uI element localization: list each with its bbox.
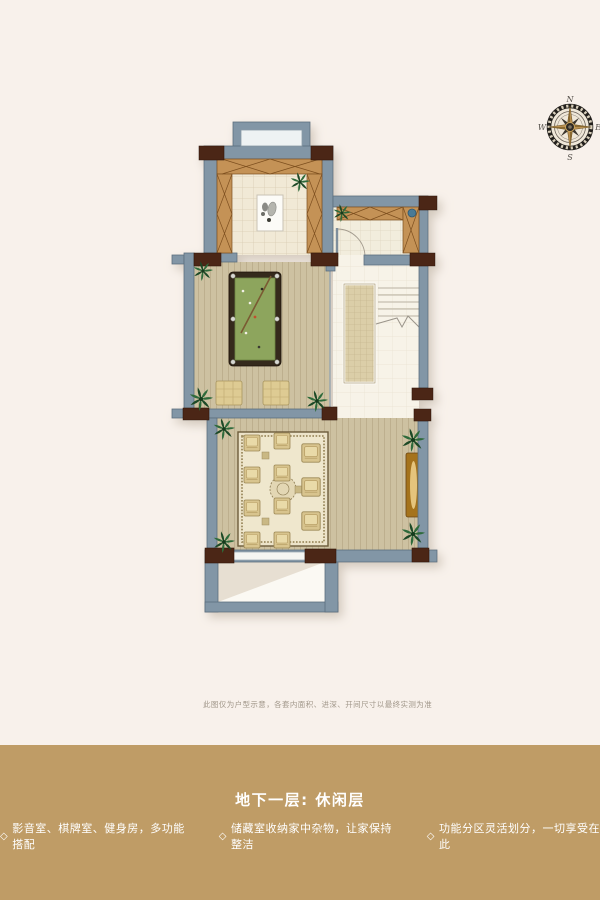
compass-letter-w: W: [538, 123, 547, 132]
diamond-bullet-icon: ◇: [0, 831, 8, 842]
vase-ornament: [408, 209, 416, 217]
lounge-chair: [274, 498, 290, 514]
lounge-chair: [302, 478, 320, 496]
lounge-chair: [244, 500, 260, 516]
floor-title: 地下一层: 休闲层: [0, 789, 600, 810]
feature-bullets: ◇ 影音室、棋牌室、健身房，多功能搭配 ◇ 储藏室收纳家中杂物，让家保持整洁 ◇…: [0, 820, 600, 852]
feature-bullet-text: 功能分区灵活划分，一切享受在此: [439, 820, 600, 852]
compass-letter-s: S: [567, 153, 573, 162]
bay-window-pane: [241, 130, 302, 146]
side-table: [262, 452, 269, 459]
lounge-chair: [274, 465, 290, 481]
lounge-chair: [274, 532, 290, 548]
mahjong-lounge: [238, 432, 328, 548]
lounge-chair: [274, 433, 290, 449]
bench-seat: [216, 381, 242, 405]
compass-rose: N E S W: [538, 95, 600, 162]
diamond-bullet-icon: ◇: [219, 831, 227, 842]
lounge-chair: [244, 435, 260, 451]
side-table: [262, 518, 269, 525]
compass-letter-e: E: [594, 123, 600, 132]
feature-bullet: ◇ 影音室、棋牌室、健身房，多功能搭配: [0, 820, 195, 852]
feature-bullet: ◇ 储藏室收纳家中杂物，让家保持整洁: [219, 820, 403, 852]
gym-equipment: [257, 195, 283, 231]
feature-bullet: ◇ 功能分区灵活划分，一切享受在此: [427, 820, 600, 852]
bench-seat: [263, 381, 289, 405]
diamond-bullet-icon: ◇: [427, 831, 435, 842]
footer-band: 地下一层: 休闲层 ◇ 影音室、棋牌室、健身房，多功能搭配 ◇ 储藏室收纳家中杂…: [0, 745, 600, 900]
leisure-window-pane: [232, 552, 305, 560]
floor-plan: [172, 122, 437, 612]
billiard-table: [229, 272, 281, 366]
feature-bullet-text: 储藏室收纳家中杂物，让家保持整洁: [231, 820, 403, 852]
feature-bullet-text: 影音室、棋牌室、健身房，多功能搭配: [12, 820, 195, 852]
plan-disclaimer: 此图仅为户型示意，各套内面积、进深、开间尺寸以最终实测为准: [203, 700, 463, 710]
lounge-chair: [244, 467, 260, 483]
floorplan-poster: { "page": { "background": "#f8f1eb" }, "…: [0, 0, 600, 900]
lounge-chair: [302, 444, 320, 462]
side-table: [295, 486, 302, 493]
lounge-chair: [302, 512, 320, 530]
lounge-chair: [244, 532, 260, 548]
compass-letter-n: N: [566, 95, 575, 104]
